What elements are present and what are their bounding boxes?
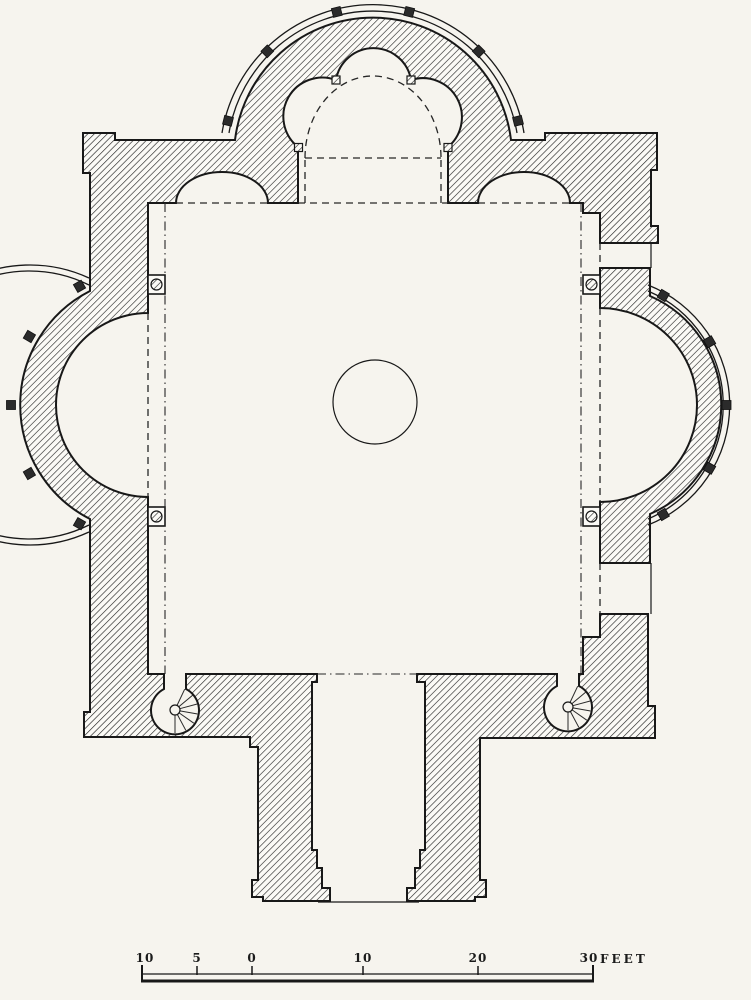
shaft-circle [151, 511, 162, 522]
shaft-circle [586, 279, 597, 290]
scale-label-0: 0 [247, 951, 256, 965]
pier-northeast [583, 275, 600, 294]
shaft-circle [586, 511, 597, 522]
shaft-circle [151, 279, 162, 290]
scale-label-5: 5 [192, 951, 201, 965]
scale-label-20: 20 [469, 951, 488, 965]
floor-plan-drawing: 10 5 0 10 20 30 FEET [0, 0, 751, 1000]
pier-northwest [148, 275, 165, 294]
scale-label-10-right: 10 [354, 951, 373, 965]
scale-unit-label: FEET [600, 952, 648, 966]
scale-label-30: 30 [580, 951, 599, 965]
pier-southeast [583, 507, 600, 526]
scale-label-10-left: 10 [136, 951, 155, 965]
pier-southwest [148, 507, 165, 526]
